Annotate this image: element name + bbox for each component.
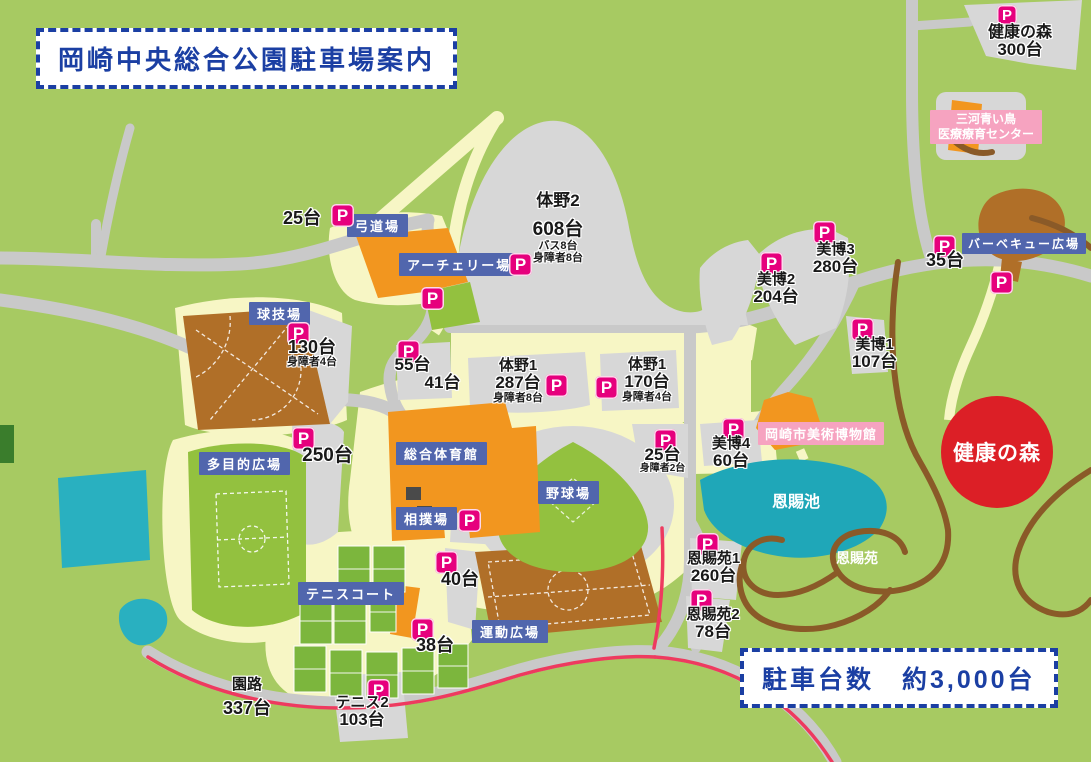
parking-name: 美博3 <box>798 242 873 258</box>
parking-info-taino1-east: 体野1 170台 身障者4台 <box>608 357 686 403</box>
parking-count: 170台 <box>608 373 686 391</box>
parking-count: 287台 <box>478 374 558 392</box>
parking-info-p55: 55台 <box>385 356 440 374</box>
parking-icon-archery-road: P <box>421 287 444 310</box>
parking-count: 35台 <box>915 251 975 270</box>
parking-name: 美博2 <box>740 272 812 288</box>
parking-name: 体野1 <box>478 358 558 374</box>
parking-sub-count: 身障者8台 <box>478 393 558 405</box>
parking-name: 体野2 <box>498 192 618 210</box>
parking-name: テニス2 <box>322 695 402 711</box>
parking-name: 健康の森 <box>960 24 1080 41</box>
parking-name: 園路 <box>202 677 292 693</box>
parking-count: 60台 <box>700 452 762 470</box>
parking-info-taino1-west: 体野1 287台 身障者8台 <box>478 358 558 404</box>
parking-info-sumo-40: 40台 <box>430 570 490 589</box>
facility-label-sogo-taiikukan: 総合体育館 <box>396 442 487 465</box>
parking-info-bihaku4: 美博4 60台 <box>700 436 762 471</box>
parking-sub-count: 身障者8台 <box>498 253 618 265</box>
mikawa-center-label: 三河青い鳥 医療療育センター <box>930 110 1042 144</box>
parking-info-kyugijo-130: 130台 身障者4台 <box>272 338 352 369</box>
parking-sub-count: 身障者4台 <box>272 357 352 369</box>
parking-info-onshien1: 恩賜苑1 260台 <box>676 551 751 586</box>
parking-count: 130台 <box>272 338 352 357</box>
parking-info-kyudo-25: 25台 <box>272 209 332 228</box>
parking-count: 107台 <box>842 353 907 371</box>
parking-info-enro: 園路 337台 <box>202 677 292 719</box>
parking-sub-count: 身障者4台 <box>608 392 686 404</box>
parking-name: 美博4 <box>700 436 762 452</box>
parking-sub-count: 身障者2台 <box>630 464 695 475</box>
parking-icon-kyudo-25: P <box>331 204 354 227</box>
parking-info-p41: 41台 <box>415 374 470 392</box>
parking-icon-kenko-top: P <box>997 5 1017 25</box>
museum-label: 岡崎市美術博物館 <box>758 422 884 445</box>
map-title: 岡崎中央総合公園駐車場案内 <box>36 28 457 89</box>
facility-label-sumojo: 相撲場 <box>396 507 457 530</box>
parking-info-bihaku2: 美博2 204台 <box>740 272 812 307</box>
parking-info-tennis-38: 38台 <box>405 636 465 655</box>
parking-name: 美博1 <box>842 337 907 353</box>
parking-info-hakubutsukan-25: 25台 身障者2台 <box>630 446 695 475</box>
parking-info-onshien2: 恩賜苑2 78台 <box>678 607 748 642</box>
facility-label-kyudojo: 弓道場 <box>347 214 408 237</box>
pond-label: 恩賜池 <box>772 488 820 512</box>
parking-count: 25台 <box>272 209 332 228</box>
parking-count: 300台 <box>960 41 1080 59</box>
parking-info-tamokuteki-250: 250台 <box>290 446 365 467</box>
facility-label-undo-hiroba: 運動広場 <box>472 620 548 643</box>
parking-count: 103台 <box>322 711 402 729</box>
facility-label-bbq-hiroba: バーベキュー広場 <box>962 233 1086 254</box>
parking-info-bbq-35: 35台 <box>915 251 975 270</box>
parking-name: 恩賜苑1 <box>676 551 751 567</box>
parking-icon-bbq-east: P <box>990 271 1013 294</box>
mikawa-center-line2: 医療療育センター <box>930 127 1042 142</box>
parking-info-tennis2: テニス2 103台 <box>322 695 402 730</box>
parking-sub-count: バス8台 <box>498 241 618 253</box>
kenko-no-mori-circle: 健康の森 <box>941 396 1053 508</box>
facility-label-tennis-court: テニスコート <box>298 582 404 605</box>
parking-info-taino2: 体野2 608台 バス8台 身障者8台 <box>498 192 618 265</box>
kenko-no-mori-label: 健康の森 <box>953 437 1041 467</box>
parking-name: 体野1 <box>608 357 686 373</box>
total-capacity-box: 駐車台数 約3,000台 <box>740 648 1058 708</box>
parking-count: 78台 <box>678 623 748 641</box>
parking-info-bihaku1: 美博1 107台 <box>842 337 907 372</box>
parking-count: 40台 <box>430 570 490 589</box>
parking-count: 204台 <box>740 288 812 306</box>
parking-count: 250台 <box>290 446 365 467</box>
parking-count: 41台 <box>415 374 470 392</box>
garden-label: 恩賜苑 <box>836 548 878 568</box>
parking-icon-sumojo: P <box>458 509 481 532</box>
parking-name: 恩賜苑2 <box>678 607 748 623</box>
parking-count: 608台 <box>498 220 618 241</box>
parking-count: 25台 <box>630 446 695 464</box>
facility-label-yakyujo: 野球場 <box>538 481 599 504</box>
parking-info-kenko-top: 健康の森 300台 <box>960 24 1080 60</box>
parking-count: 38台 <box>405 636 465 655</box>
park-map: 岡崎中央総合公園駐車場案内 駐車台数 約3,000台 弓道場 アーチェリー場 球… <box>0 0 1091 762</box>
facility-label-tamokuteki: 多目的広場 <box>199 452 290 475</box>
mikawa-center-line1: 三河青い鳥 <box>930 112 1042 127</box>
parking-count: 55台 <box>385 356 440 374</box>
parking-count: 337台 <box>202 699 292 718</box>
parking-count: 260台 <box>676 567 751 585</box>
